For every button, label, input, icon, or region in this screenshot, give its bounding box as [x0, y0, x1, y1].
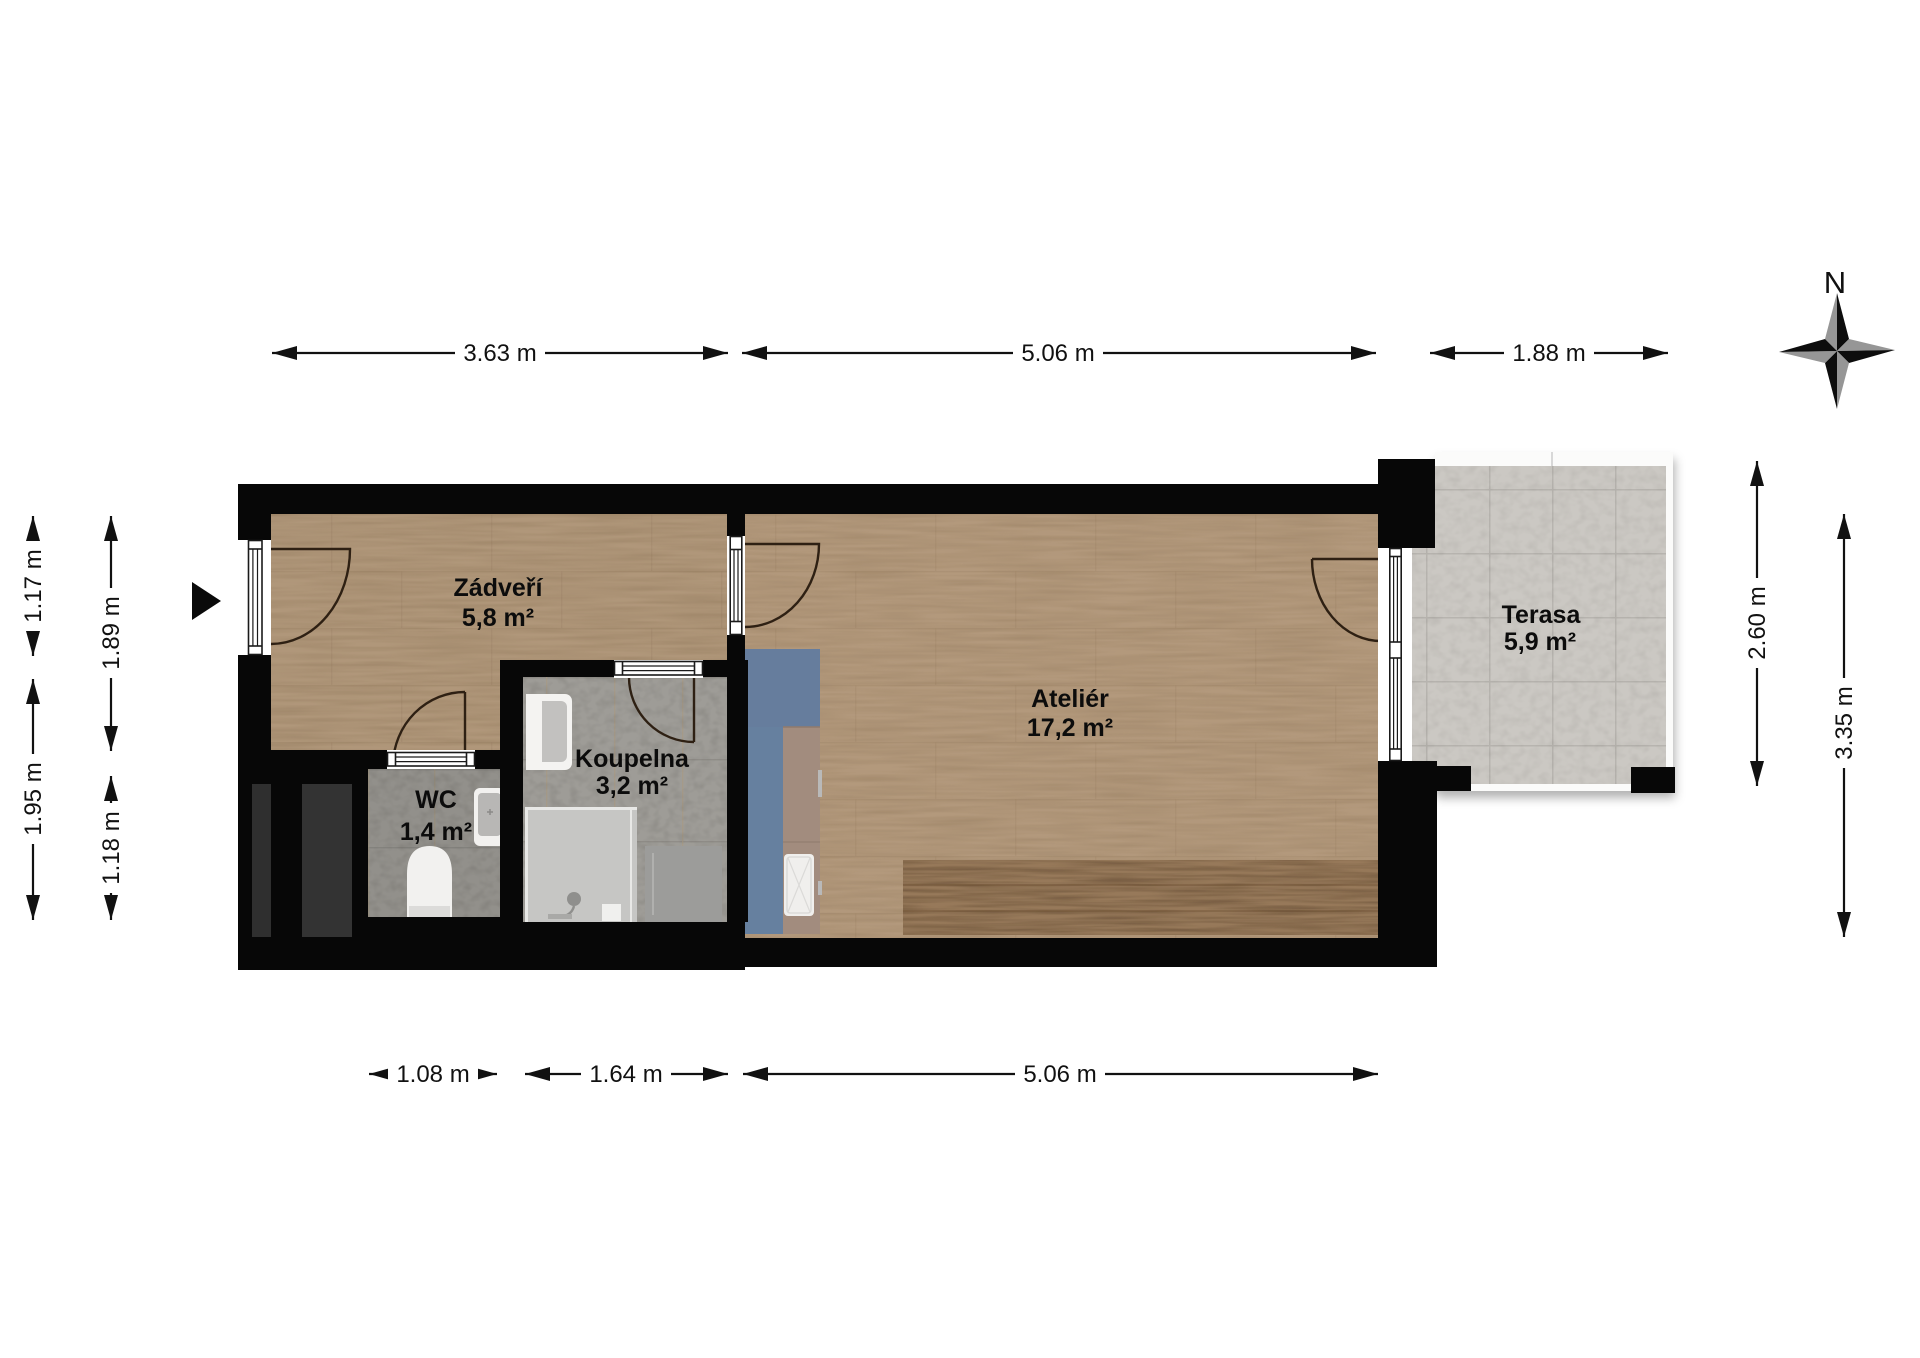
svg-text:1.17 m: 1.17 m — [20, 549, 47, 622]
svg-text:2.60 m: 2.60 m — [1744, 586, 1771, 659]
svg-text:5,8 m²: 5,8 m² — [462, 604, 534, 632]
svg-text:3.63 m: 3.63 m — [463, 340, 536, 367]
svg-text:Zádveří: Zádveří — [454, 574, 544, 602]
svg-text:1.64 m: 1.64 m — [589, 1061, 662, 1088]
svg-text:5,9 m²: 5,9 m² — [1504, 628, 1576, 656]
svg-text:Ateliér: Ateliér — [1031, 685, 1109, 713]
svg-text:1.89 m: 1.89 m — [98, 596, 125, 669]
svg-text:Koupelna: Koupelna — [575, 745, 690, 773]
svg-text:N: N — [1824, 265, 1846, 300]
svg-text:1.88 m: 1.88 m — [1512, 340, 1585, 367]
svg-text:5.06 m: 5.06 m — [1021, 340, 1094, 367]
svg-text:5.06 m: 5.06 m — [1023, 1061, 1096, 1088]
svg-text:WC: WC — [415, 786, 457, 814]
svg-text:1.18 m: 1.18 m — [98, 811, 125, 884]
svg-text:Terasa: Terasa — [1502, 601, 1582, 629]
svg-text:3.35 m: 3.35 m — [1831, 686, 1858, 759]
svg-text:17,2 m²: 17,2 m² — [1027, 714, 1113, 742]
svg-text:1.95 m: 1.95 m — [20, 762, 47, 835]
svg-text:3,2 m²: 3,2 m² — [596, 772, 668, 800]
svg-text:1.08 m: 1.08 m — [396, 1061, 469, 1088]
svg-text:1,4 m²: 1,4 m² — [400, 818, 472, 846]
